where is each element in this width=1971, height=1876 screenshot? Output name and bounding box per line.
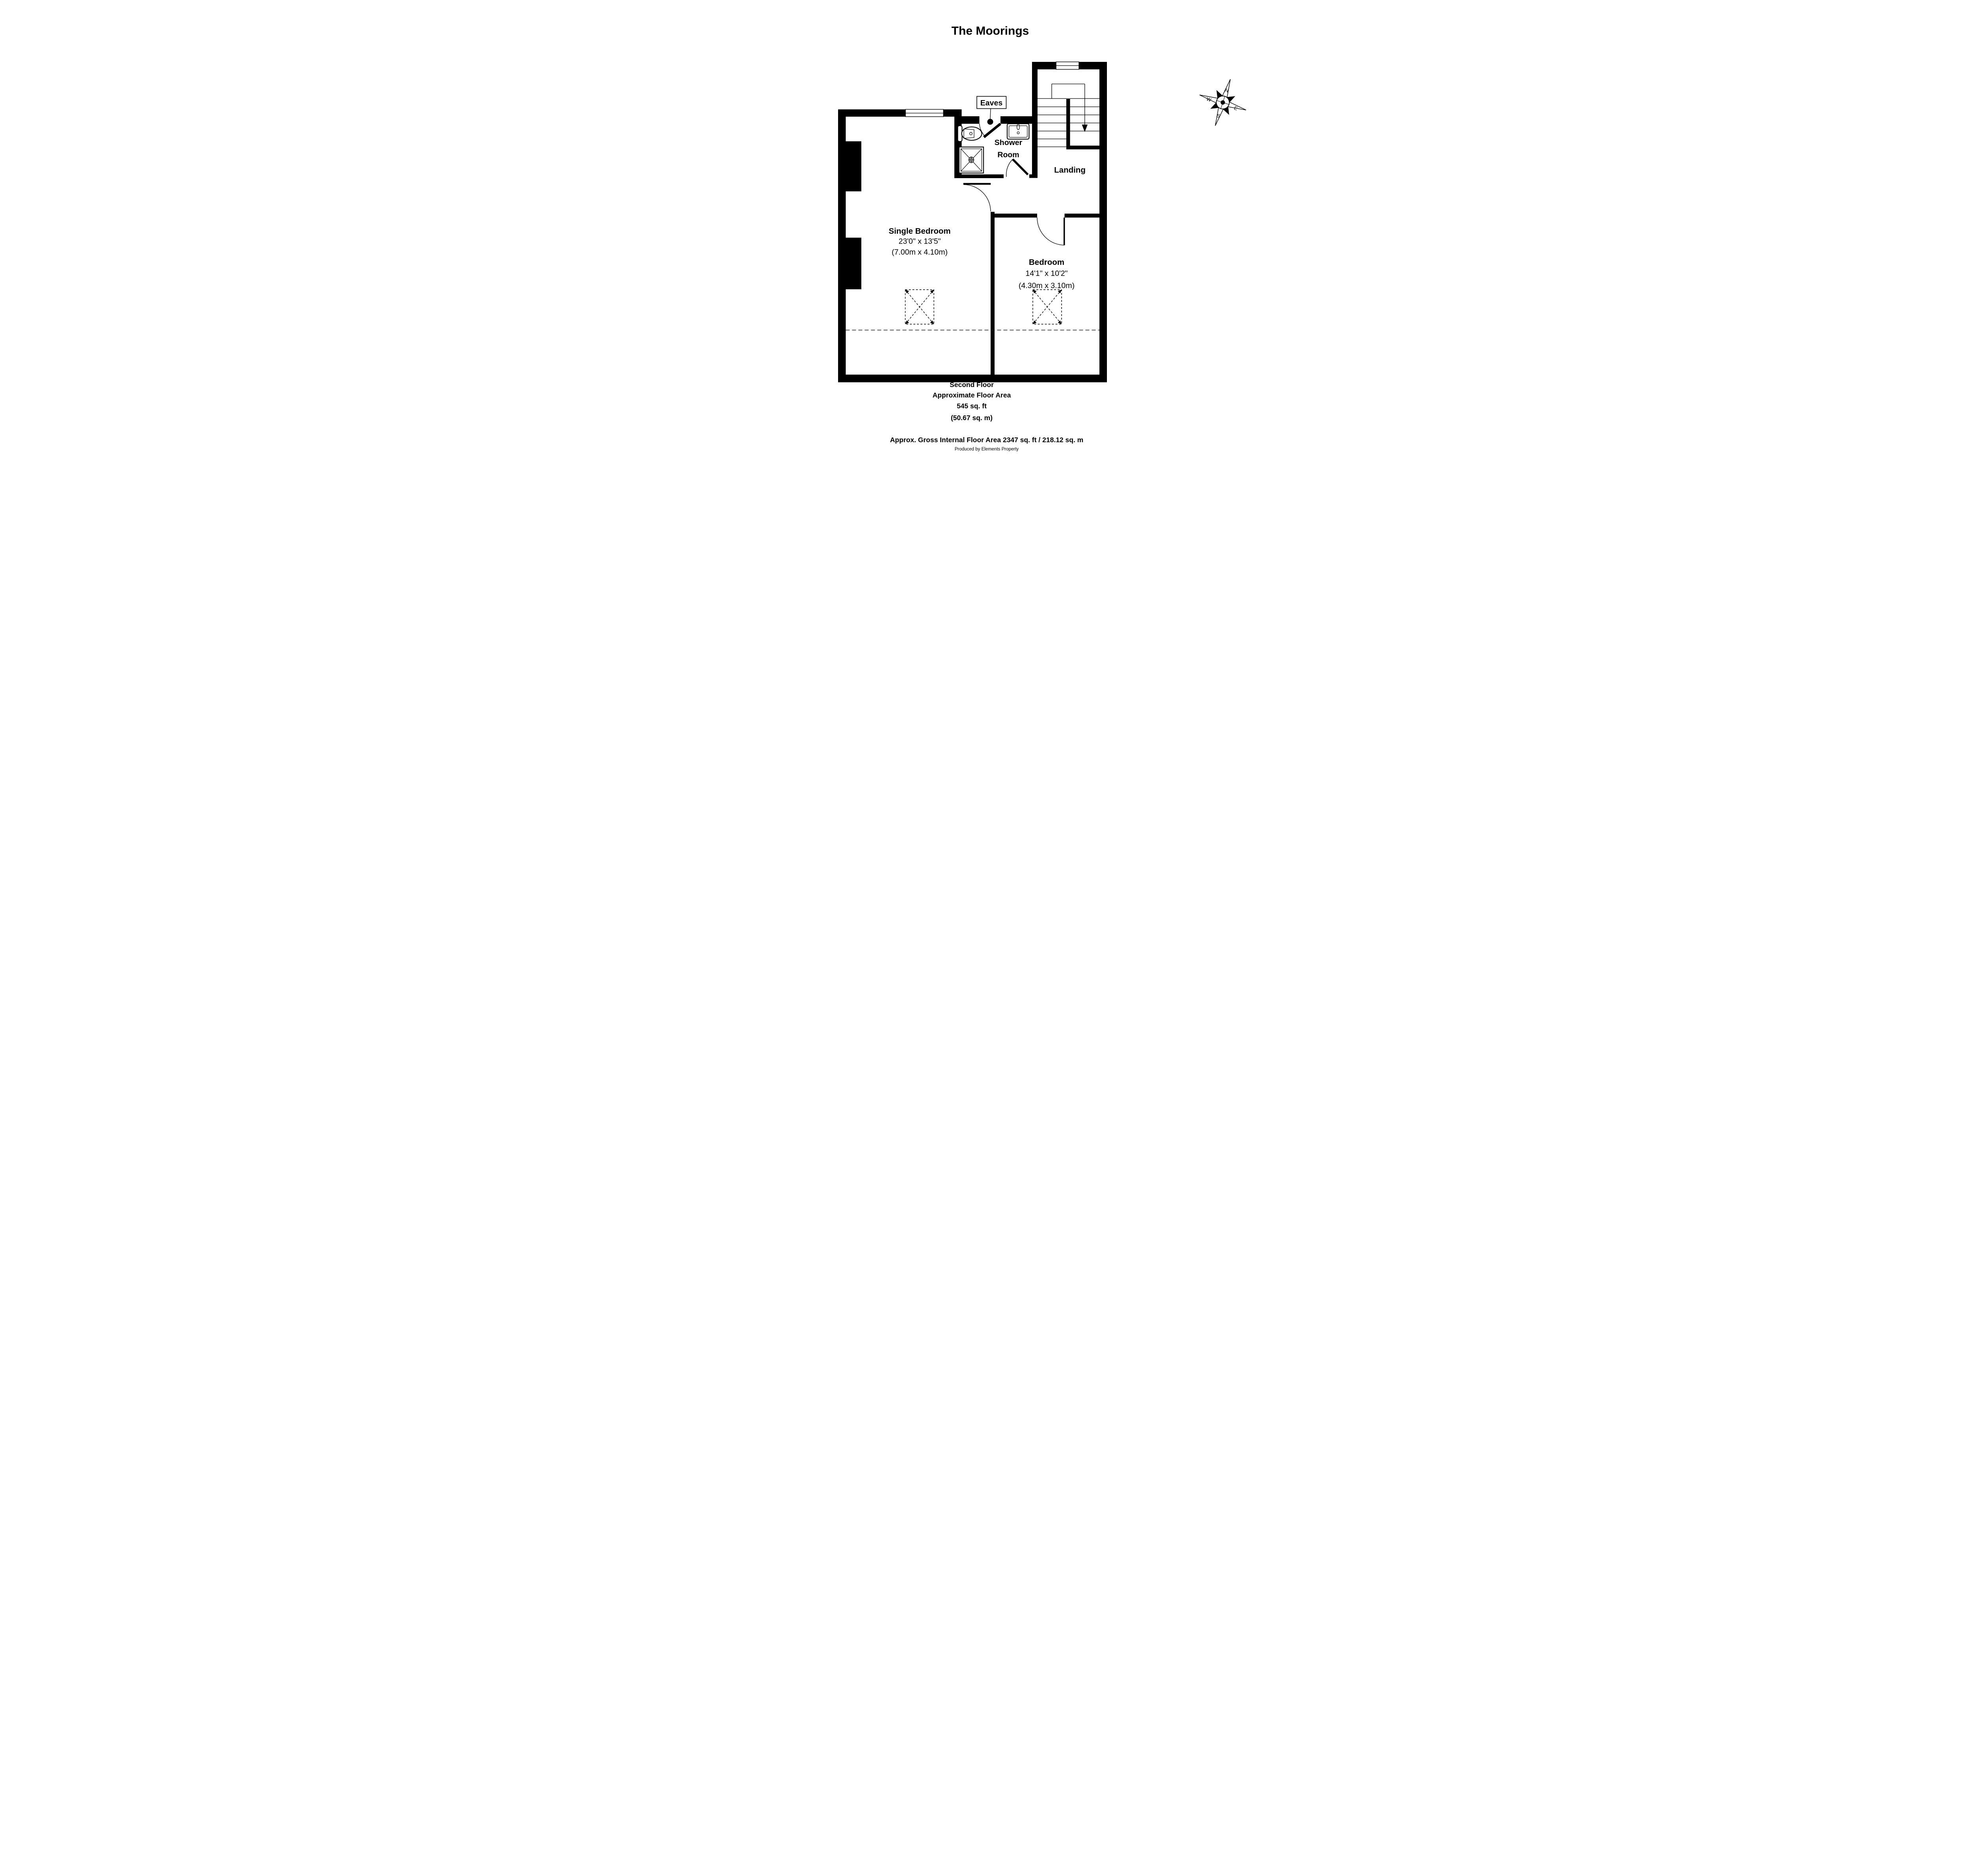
eaves-block-lower [846,238,862,289]
wall-shower-bottom [954,175,1004,179]
wall-tower-left [1032,62,1038,178]
skylight-symbol-1 [905,290,934,324]
door-arc-shower [1006,159,1013,177]
wall-tower-top-right [1079,62,1107,69]
bedroom-dims-metric: (4.30m x 3.10m) [1019,281,1075,290]
door-arc-bedroom [1037,218,1065,245]
floorplan-page: The Moorings [654,0,1317,469]
single-bedroom-name: Single Bedroom [889,227,950,236]
compass-rose: N E S W [1192,72,1254,133]
skylight-symbol-2 [1033,290,1062,324]
eaves-block-upper [846,141,862,192]
footer-gross-area: Approx. Gross Internal Floor Area 2347 s… [890,436,1084,444]
compass-letter-n: N [1224,87,1229,94]
footer-area-metric: (50.67 sq. m) [951,414,993,422]
page-title: The Moorings [952,24,1029,37]
skylight-arrowhead [1058,290,1062,294]
door-arc-single-bedroom [964,185,991,212]
walls [838,62,1107,382]
footer-floor-name: Second Floor [950,381,994,389]
shower-room-label-line2: Room [997,151,1019,159]
floorplan-canvas: The Moorings [654,0,1317,469]
wall-shower-top-a [962,116,980,124]
skylight-arrowhead [930,320,934,324]
wall-top-mid [943,110,962,117]
wall-bedroom-top-right [1065,214,1100,218]
skylight-diagonal [905,290,934,324]
footer-area-imperial: 545 sq. ft [957,402,987,410]
wall-stair-bottom [1066,146,1099,150]
footer-area-label: Approximate Floor Area [933,391,1011,399]
wall-bedroom-top-left [995,214,1037,218]
skylight-arrowhead [905,290,909,294]
footer: Second Floor Approximate Floor Area 545 … [890,381,1084,452]
door-leaf-single-bedroom [963,183,991,185]
skylight-arrowhead [1033,320,1037,324]
wall-right [1099,62,1107,382]
door-leaf-shower [1013,159,1028,175]
wall-top-left [838,110,905,117]
single-bedroom-dims-imperial: 23'0" x 13'5" [899,237,941,246]
door-leaf-bedroom [1064,218,1065,245]
skylight-arrowhead [1033,290,1037,294]
eaves-label: Eaves [980,99,1003,108]
sink-outer [1007,124,1029,139]
skylight-arrowhead [905,320,909,324]
wall-left [838,110,846,383]
wall-shower-bottom-stub [1029,175,1038,178]
toilet-icon [958,126,982,141]
single-bedroom-dims-metric: (7.00m x 4.10m) [892,248,948,257]
eaves-leader-line [990,109,991,120]
wall-shower-top-b [1000,116,1033,124]
eaves-sloped-wall [984,124,1000,137]
room-labels: Shower Room Landing Single Bedroom 23'0"… [889,138,1085,290]
wall-stair-divider [1066,99,1070,149]
bedroom-name: Bedroom [1029,258,1064,267]
shower-room-label-line1: Shower [995,138,1023,147]
landing-label: Landing [1054,166,1086,175]
skylight-arrowhead [930,290,934,294]
skylight-diagonal [1033,290,1062,324]
sink-icon [1007,124,1029,139]
wall-dividing [991,212,995,375]
skylight-arrowhead [1058,320,1062,324]
eaves-point-dot [987,119,993,125]
bedroom-dims-imperial: 14'1" x 10'2" [1026,269,1068,278]
compass-letter-s: S [1216,113,1221,119]
footer-produced-by: Produced by Elements Property [955,447,1019,452]
shower-tray-icon [959,147,984,173]
